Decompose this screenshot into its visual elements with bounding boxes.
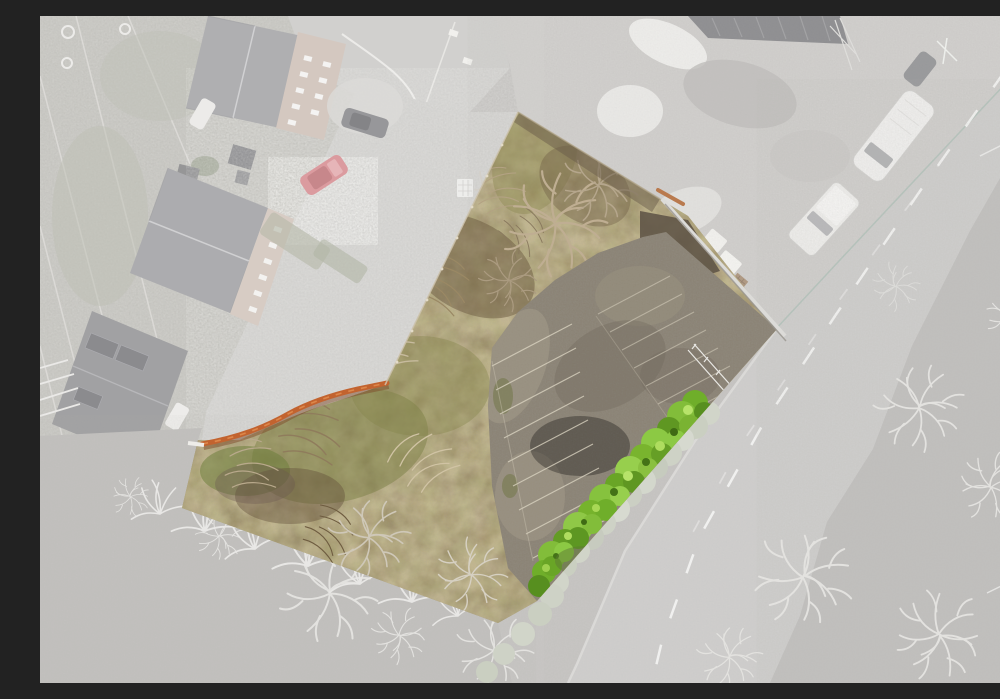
gate <box>188 443 204 445</box>
aerial-photo <box>40 16 1000 683</box>
aerial-photo-canvas <box>40 16 1000 683</box>
